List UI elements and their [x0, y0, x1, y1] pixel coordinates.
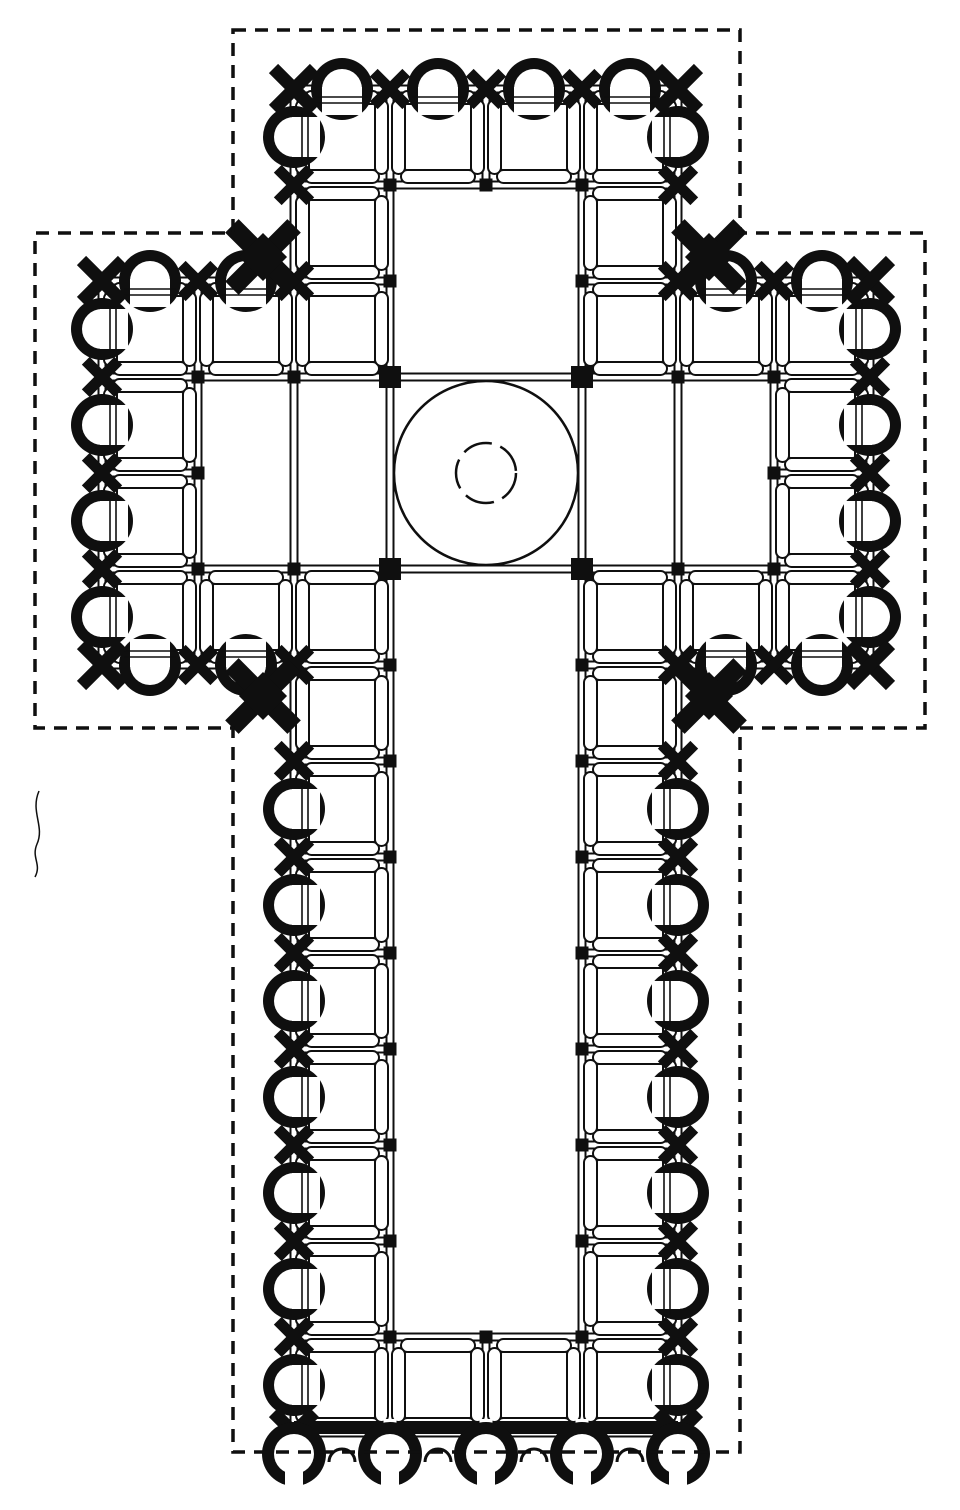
paper-background: [0, 0, 960, 1510]
cathedral-floor-plan-page: [0, 0, 960, 1510]
cruciform-floor-plan-drawing: [0, 0, 960, 1510]
